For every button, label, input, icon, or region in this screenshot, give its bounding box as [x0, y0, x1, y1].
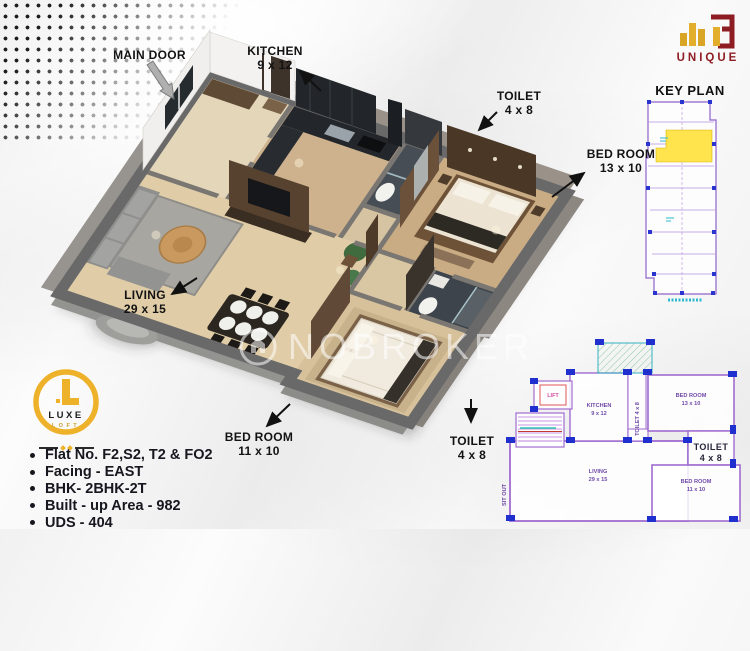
bedroom-right-size: 13 x 10: [578, 161, 664, 175]
bhk: BHK- 2BHK-2T: [45, 481, 147, 497]
logo-bar: [680, 33, 687, 46]
main-door-label: MAIN DOOR: [102, 48, 197, 62]
list-item: UDS - 404: [30, 514, 213, 531]
label-main-door: MAIN DOOR: [102, 48, 197, 62]
logo-bar: [689, 23, 696, 46]
list-item: Built - up Area - 982: [30, 497, 213, 514]
luxe-l-dot: [56, 399, 60, 403]
list-item: BHK- 2BHK-2T: [30, 481, 213, 498]
luxe-text: LUXE: [48, 410, 83, 421]
living-size: 29 x 15: [107, 302, 183, 316]
living-label: LIVING: [107, 288, 183, 302]
label-toilet-top: TOILET 4 x 8: [484, 89, 554, 117]
floorplan-flyer: { "annotations": { "main_door": {"label"…: [0, 0, 750, 529]
bullet: [30, 503, 35, 508]
bullet: [30, 486, 35, 491]
label-bedroom-right: BED ROOM 13 x 10: [578, 147, 664, 175]
bedroom-bottom-size: 11 x 10: [220, 444, 298, 458]
luxe-loft-logo: LUXE LOFT: [29, 366, 103, 450]
luxe-logo-mark: LUXE LOFT: [29, 366, 103, 438]
toilet-top-size: 4 x 8: [484, 103, 554, 117]
kitchen-arrow: [300, 71, 321, 91]
toilet-bottom-label: TOILET: [439, 434, 505, 448]
toilet-top-label: TOILET: [484, 89, 554, 103]
label-kitchen: KITCHEN 9 x 12: [235, 44, 315, 72]
loft-text: LOFT: [52, 423, 80, 429]
logo-bar: [698, 29, 705, 46]
unique-logo-mark: UNIQUE: [666, 5, 750, 67]
uds: UDS - 404: [45, 515, 113, 531]
builtup-area: Built - up Area - 982: [45, 498, 181, 514]
luxe-l-mark: [62, 379, 79, 405]
facing: Facing - EAST: [45, 464, 143, 480]
bedroom-bottom-arrow: [267, 404, 290, 426]
label-bedroom-bottom: BED ROOM 11 x 10: [220, 430, 298, 458]
label-toilet-bottom: TOILET 4 x 8: [439, 434, 505, 462]
keyplan-title: KEY PLAN: [652, 83, 728, 98]
kitchen-size: 9 x 12: [235, 58, 315, 72]
main-door-arrow: [147, 61, 174, 99]
bullet: [30, 520, 35, 525]
bedroom-right-label: BED ROOM: [578, 147, 664, 161]
bullet: [30, 453, 35, 458]
list-item: Facing - EAST: [30, 464, 213, 481]
kitchen-label: KITCHEN: [235, 44, 315, 58]
flat-no: Flat No. F2,S2, T2 & FO2: [45, 447, 213, 463]
unique-logo: UNIQUE: [666, 5, 750, 72]
bullet: [30, 470, 35, 475]
bedroom-bottom-label: BED ROOM: [220, 430, 298, 444]
bedroom-right-arrow: [552, 173, 584, 197]
toilet-bottom-size: 4 x 8: [439, 448, 505, 462]
flat-details-list: Flat No. F2,S2, T2 & FO2 Facing - EAST B…: [30, 447, 213, 531]
unique-logo-text: UNIQUE: [677, 52, 740, 64]
list-item: Flat No. F2,S2, T2 & FO2: [30, 447, 213, 464]
label-living: LIVING 29 x 15: [107, 288, 183, 316]
logo-bar: [713, 27, 720, 46]
